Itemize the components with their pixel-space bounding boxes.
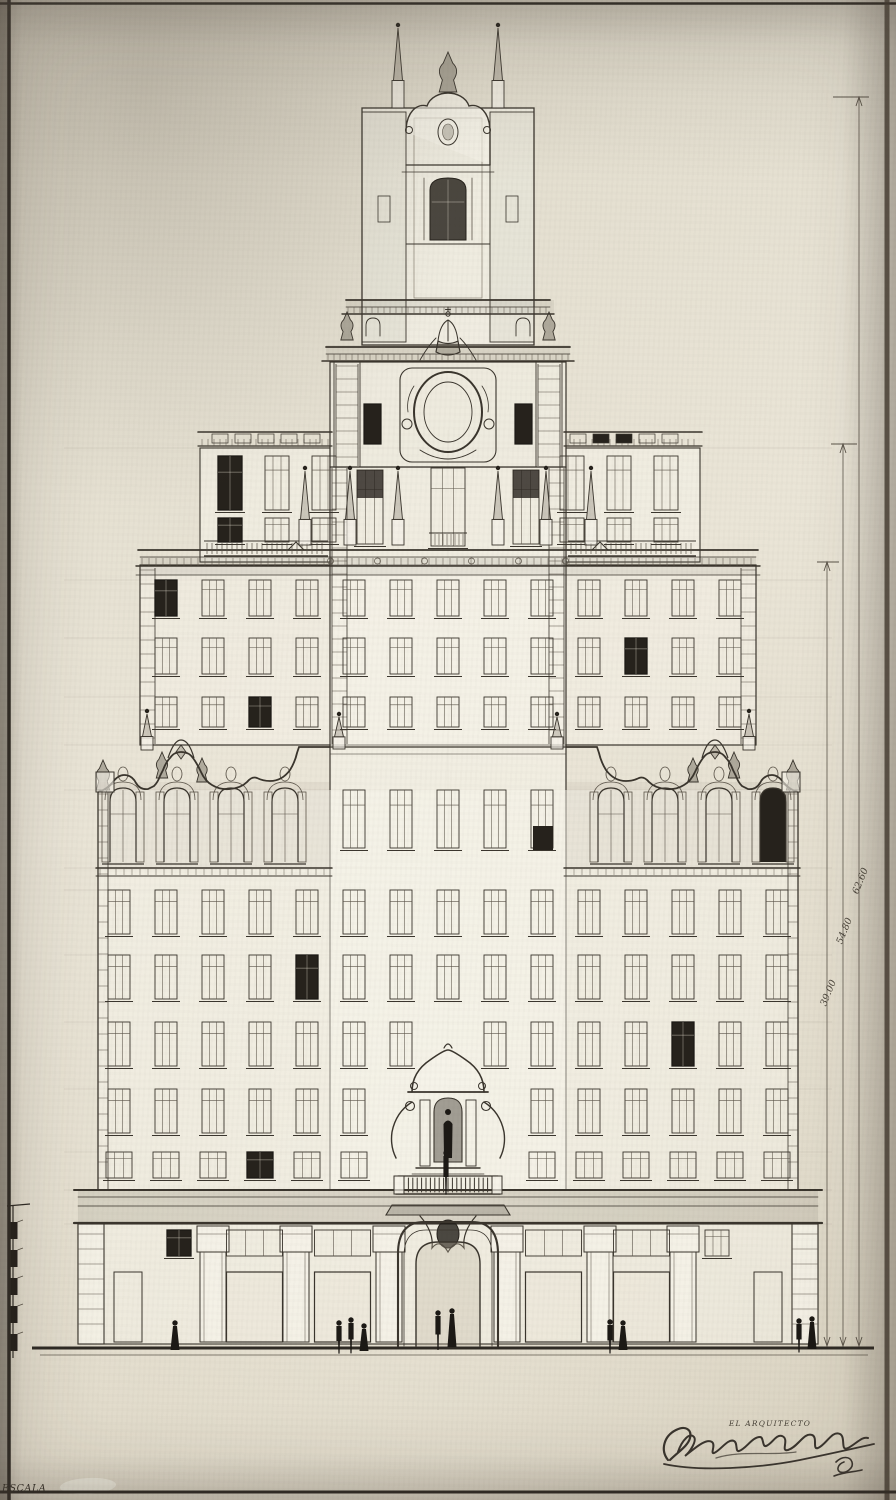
dimension-label-inner: 39.00 bbox=[818, 978, 838, 1007]
transom-dark bbox=[164, 1230, 194, 1259]
window-dark bbox=[293, 955, 321, 1002]
ground-line bbox=[32, 1348, 874, 1355]
urn-finial bbox=[439, 52, 457, 92]
dimension-label-middle: 54.80 bbox=[834, 916, 854, 945]
pinnacle bbox=[392, 23, 404, 108]
architect-caption: EL ARQUITECTO bbox=[728, 1419, 811, 1428]
window-dark bbox=[152, 580, 180, 619]
urn-finial bbox=[341, 312, 353, 340]
door-opening bbox=[416, 1242, 480, 1346]
window-dark bbox=[215, 456, 245, 513]
cartouche-block bbox=[322, 307, 574, 467]
elevation-drawing: 62.60 54.80 39.00 ESCALA EL ARQUITECTO bbox=[0, 0, 896, 1500]
window-dark bbox=[244, 1152, 276, 1181]
window-dark bbox=[215, 518, 245, 545]
lozenge-cartouche bbox=[176, 745, 186, 759]
window-dark bbox=[622, 638, 650, 677]
dimension-label-outer: 62.60 bbox=[850, 866, 870, 895]
drawing-sheet-photo: 62.60 54.80 39.00 ESCALA EL ARQUITECTO bbox=[0, 0, 896, 1500]
window-dark bbox=[533, 826, 553, 850]
pinnacle bbox=[492, 23, 504, 108]
urn-finial bbox=[543, 312, 555, 340]
architect-signature bbox=[664, 1428, 874, 1476]
window-dark bbox=[246, 697, 274, 730]
dimension-lines: 62.60 54.80 39.00 bbox=[817, 97, 871, 1346]
window-dark bbox=[669, 1022, 697, 1069]
